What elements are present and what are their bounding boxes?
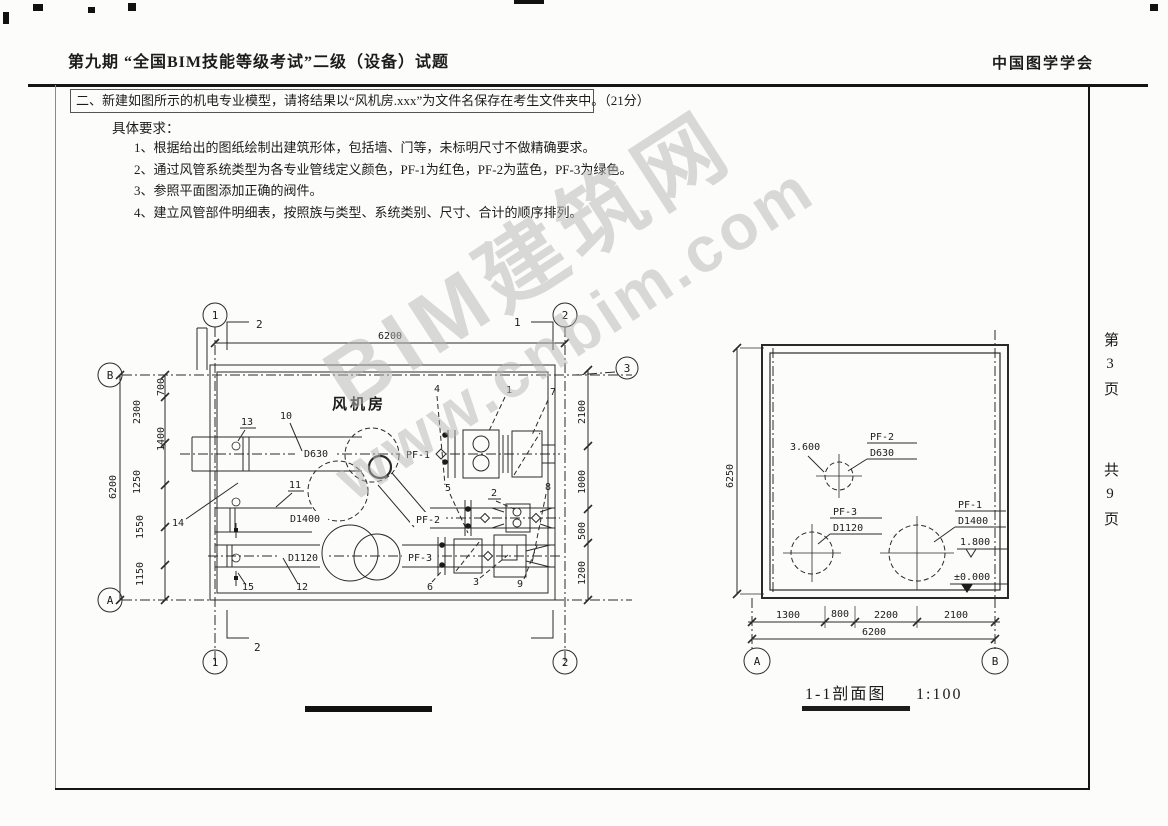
dim-left-4: 1250 <box>132 470 143 494</box>
cut-label-bottom-left: 2 <box>254 641 261 654</box>
callout-13: 13 <box>241 417 253 428</box>
dim-bottom-4: 2100 <box>944 610 968 621</box>
section-size-pf3: D1120 <box>833 523 863 534</box>
duct-run-pf3: D1400 D1120 PF-3 <box>215 508 555 581</box>
fan-room-plan-drawing: 1 2 1 2 B A 3 2 1 2 6200 6200 <box>80 295 680 735</box>
plan-top-dimension: 6200 <box>211 331 569 347</box>
dim-left-1: 700 <box>156 378 167 396</box>
section-left-dimension: 6250 <box>725 344 764 598</box>
section-caption: 1-1剖面图 <box>805 685 886 703</box>
callout-7: 7 <box>550 387 556 398</box>
section-centerlines <box>752 330 995 652</box>
plan-left-dimensions: 6200 700 2300 1400 1250 1550 1150 <box>108 371 169 604</box>
grid-bubble-A: A <box>107 594 114 607</box>
dim-bottom-overall: 6200 <box>862 627 886 638</box>
dim-left-5: 1550 <box>135 515 146 539</box>
system-label-pf2: PF-2 <box>416 515 440 526</box>
callout-1: 1 <box>506 385 512 396</box>
bottom-frame-rule <box>55 788 1090 790</box>
dim-left-overall: 6200 <box>108 475 119 499</box>
dim-left-2: 2300 <box>132 400 143 424</box>
scan-mark <box>514 0 544 4</box>
page-number: 第3页 <box>1100 332 1121 405</box>
section-tag-pf2: PF-2 <box>870 432 894 443</box>
cut-label-top-right: 1 <box>514 316 521 329</box>
section-size-pf1: D1400 <box>958 516 988 527</box>
dim-left-6: 1150 <box>135 562 146 586</box>
duct-run-pf1: D630 PF-1 <box>192 428 555 527</box>
section-tag-pf3: PF-3 <box>833 507 857 518</box>
section-bubble-B: B <box>992 655 999 668</box>
header-rule <box>28 84 1148 87</box>
scan-mark <box>88 7 95 13</box>
callout-3: 3 <box>473 577 479 588</box>
dim-bottom-3: 2200 <box>874 610 898 621</box>
plan-callouts: 1 2 3 4 5 6 7 8 9 10 11 12 13 <box>172 384 556 593</box>
duct-run-pf2: PF-2 <box>410 500 555 536</box>
dim-right-2: 1000 <box>577 470 588 494</box>
scan-mark <box>1150 4 1158 11</box>
grid-bubble-2-top: 2 <box>562 309 569 322</box>
left-frame-rule <box>55 85 56 788</box>
section-duct-pf2: PF-2 D630 3.600 <box>790 432 917 498</box>
scan-mark <box>3 12 9 24</box>
question-item-3: 3、参照平面图添加正确的阀件。 <box>134 180 632 202</box>
wall-anchor-symbols <box>232 442 240 586</box>
level-pf2: 3.600 <box>790 442 820 453</box>
duct-size-d1400: D1400 <box>290 514 320 525</box>
section-walls <box>762 345 1008 598</box>
callout-10: 10 <box>280 411 292 422</box>
scanned-exam-page: 第九期 “全国BIM技能等级考试”二级（设备）试题 中国图学学会 第3页 共9页… <box>0 0 1168 826</box>
section-tag-pf1: PF-1 <box>958 500 982 511</box>
dim-bottom-2: 800 <box>831 609 849 620</box>
callout-15: 15 <box>242 582 254 593</box>
grid-bubble-1-bottom: 1 <box>212 656 219 669</box>
question-subtitle: 具体要求： <box>112 117 180 137</box>
grid-bubble-2-bottom: 2 <box>562 656 569 669</box>
room-label: 风机房 <box>332 395 386 413</box>
callout-11: 11 <box>289 480 301 491</box>
callout-2: 2 <box>491 488 497 499</box>
question-item-4: 4、建立风管部件明细表，按照族与类型、系统类别、尺寸、合计的顺序排列。 <box>134 202 632 224</box>
dim-right-3: 500 <box>577 522 588 540</box>
section-cut-marks <box>227 322 553 638</box>
duct-size-d630: D630 <box>304 449 328 460</box>
section-bubble-A: A <box>754 655 761 668</box>
grid-bubble-B: B <box>107 369 114 382</box>
callout-9: 9 <box>517 579 523 590</box>
dim-right-1: 2100 <box>577 400 588 424</box>
callout-4: 4 <box>434 384 440 395</box>
section-duct-pf1: PF-1 D1400 1.800 ±0.000 <box>880 500 1007 593</box>
question-item-1: 1、根据给出的图纸绘制出建筑形体，包括墙、门等，未标明尺寸不做精确要求。 <box>134 137 632 159</box>
callout-14: 14 <box>172 518 184 529</box>
callout-8: 8 <box>545 482 551 493</box>
right-frame-rule <box>1088 85 1090 790</box>
grid-bubble-1-top: 1 <box>212 309 219 322</box>
section-1-1-drawing: PF-2 D630 3.600 PF-3 D1120 PF-1 D1400 <box>720 330 1050 730</box>
section-grid-bubbles: A B <box>744 648 1008 674</box>
grid-bubble-3: 3 <box>624 362 631 375</box>
callout-5: 5 <box>445 483 451 494</box>
cut-label-top-left: 2 <box>256 318 263 331</box>
section-duct-pf3: PF-3 D1120 <box>783 507 882 582</box>
page-total: 共9页 <box>1100 462 1121 535</box>
question-item-2: 2、通过风管系统类型为各专业管线定义颜色，PF-1为红色，PF-2为蓝色，PF-… <box>134 159 632 181</box>
duct-size-d1120: D1120 <box>288 553 318 564</box>
plan-right-dimensions: 2100 1000 500 1200 <box>577 366 592 604</box>
system-label-pf3: PF-3 <box>408 553 432 564</box>
system-label-pf1: PF-1 <box>406 450 430 461</box>
dim-right-4: 1200 <box>577 561 588 585</box>
scan-mark <box>33 4 43 11</box>
page-title: 第九期 “全国BIM技能等级考试”二级（设备）试题 <box>68 48 449 72</box>
dim-section-height: 6250 <box>725 464 736 488</box>
level-floor: ±0.000 <box>954 572 990 583</box>
callout-6: 6 <box>427 582 433 593</box>
dim-bottom-1: 1300 <box>776 610 800 621</box>
question-items: 1、根据给出的图纸绘制出建筑形体，包括墙、门等，未标明尺寸不做精确要求。 2、通… <box>134 137 632 223</box>
section-scale: 1:100 <box>916 686 962 703</box>
dim-left-3: 1400 <box>156 427 167 451</box>
scan-mark <box>128 3 136 11</box>
level-pf1: 1.800 <box>960 537 990 548</box>
dim-top-overall: 6200 <box>378 331 402 342</box>
section-size-pf2: D630 <box>870 448 894 459</box>
plan-caption-bar <box>305 706 432 712</box>
room-walls <box>197 328 555 600</box>
organization-name: 中国图学学会 <box>992 52 1094 73</box>
question-intro: 二、新建如图所示的机电专业模型，请将结果以“风机房.xxx”为文件名保存在考生文… <box>70 89 594 113</box>
section-bottom-dimensions: 1300 800 2200 2100 6200 <box>748 606 1000 643</box>
